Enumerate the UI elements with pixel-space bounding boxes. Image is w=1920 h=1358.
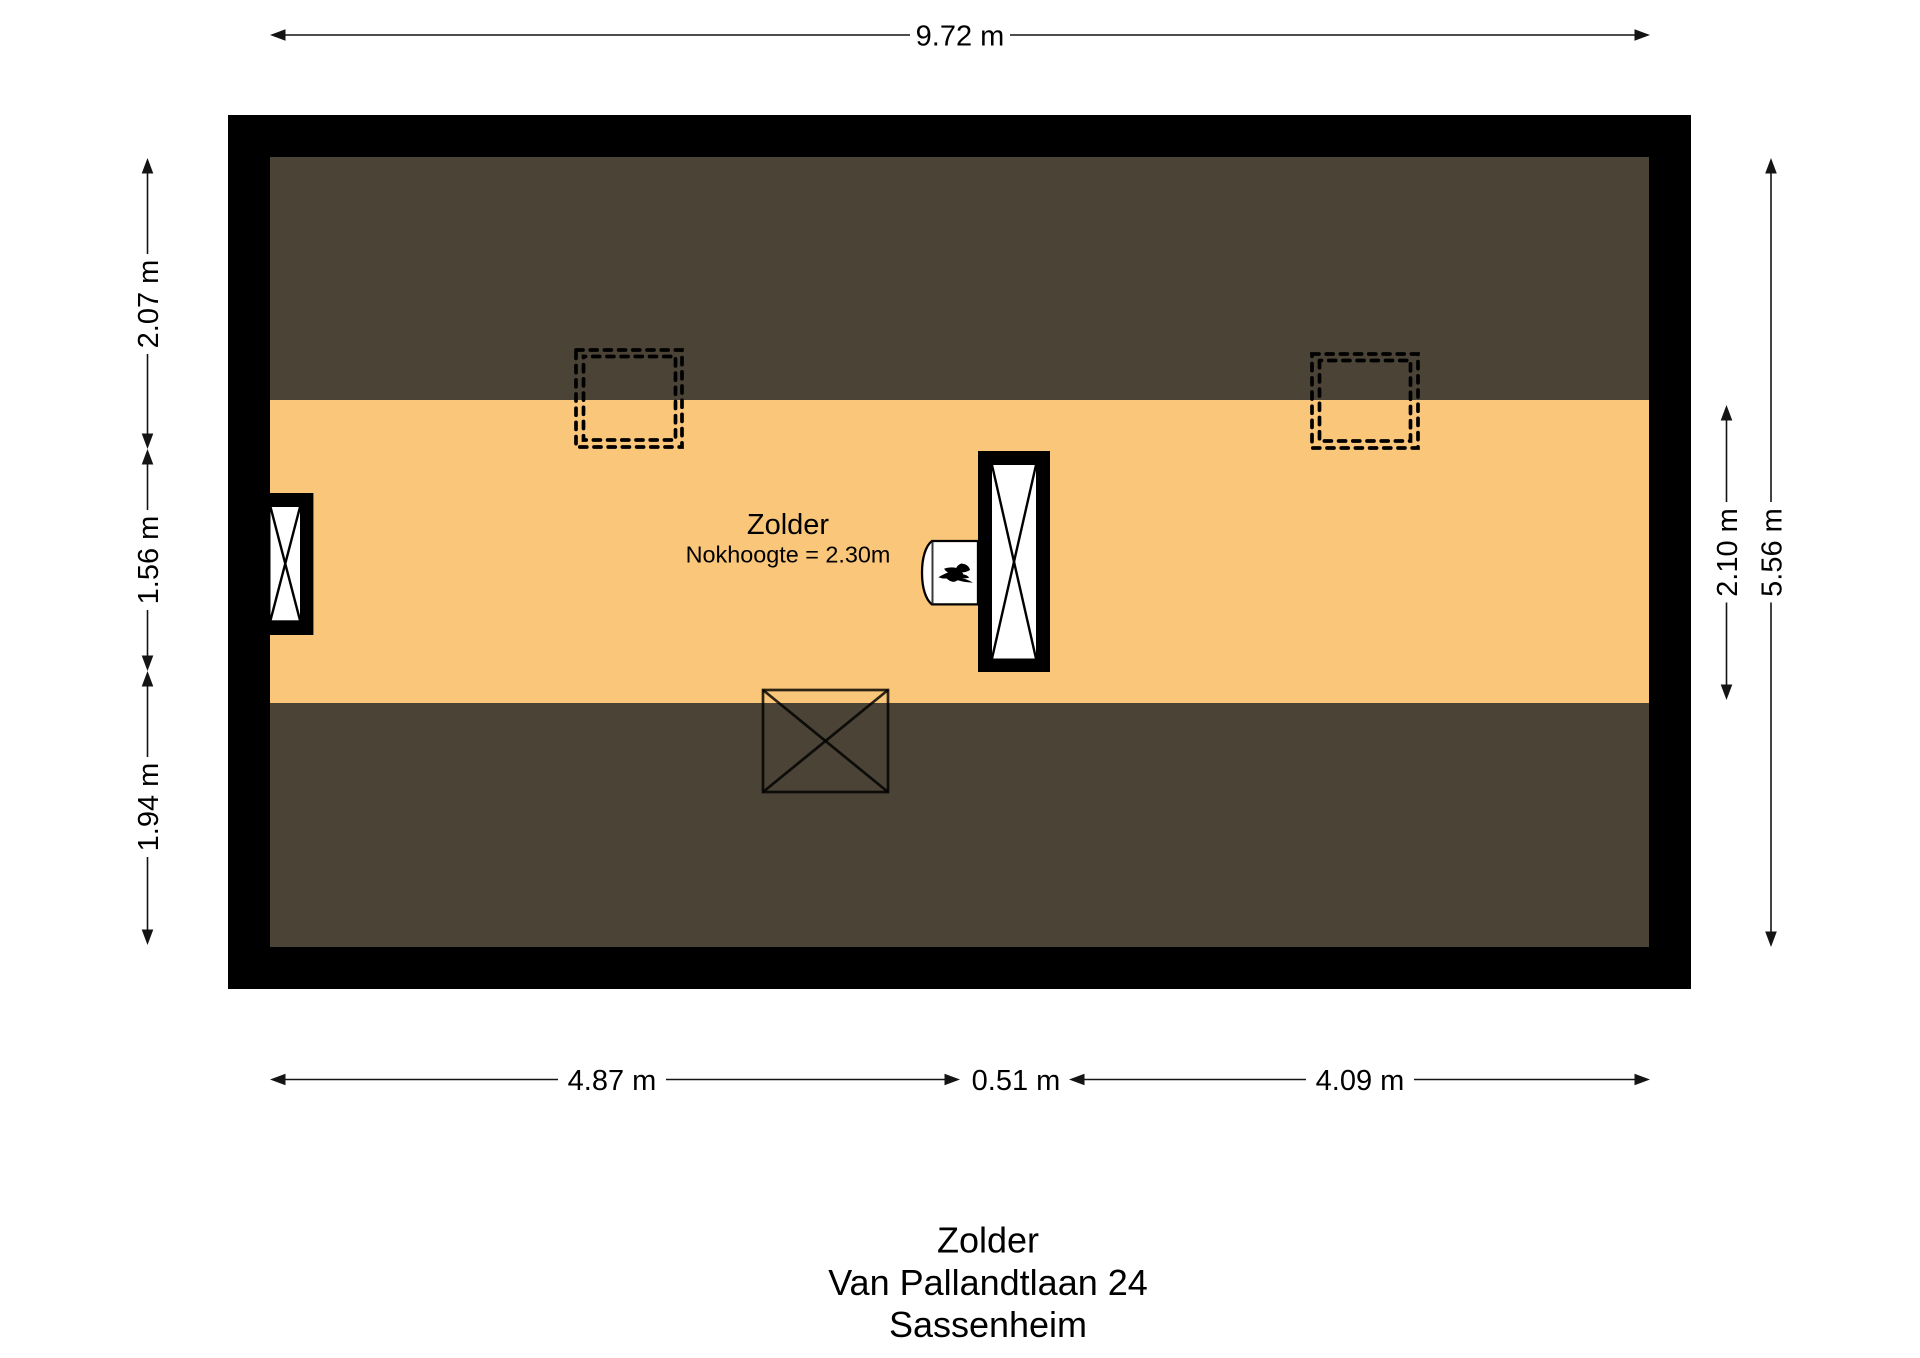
svg-text:Zolder: Zolder — [747, 509, 830, 541]
svg-text:1.94 m: 1.94 m — [133, 763, 165, 852]
svg-text:5.56 m: 5.56 m — [1756, 508, 1788, 597]
svg-text:4.87 m: 4.87 m — [568, 1065, 657, 1097]
svg-text:2.07 m: 2.07 m — [133, 260, 165, 349]
svg-text:9.72 m: 9.72 m — [916, 21, 1005, 53]
svg-text:Sassenheim: Sassenheim — [889, 1304, 1087, 1345]
svg-text:Van Pallandtlaan 24: Van Pallandtlaan 24 — [828, 1262, 1148, 1303]
svg-text:0.51 m: 0.51 m — [972, 1065, 1061, 1097]
svg-text:Zolder: Zolder — [937, 1220, 1039, 1261]
svg-text:4.09 m: 4.09 m — [1316, 1065, 1405, 1097]
svg-text:1.56 m: 1.56 m — [133, 516, 165, 605]
svg-text:Nokhoogte = 2.30m: Nokhoogte = 2.30m — [686, 542, 891, 568]
svg-text:2.10 m: 2.10 m — [1712, 508, 1744, 597]
